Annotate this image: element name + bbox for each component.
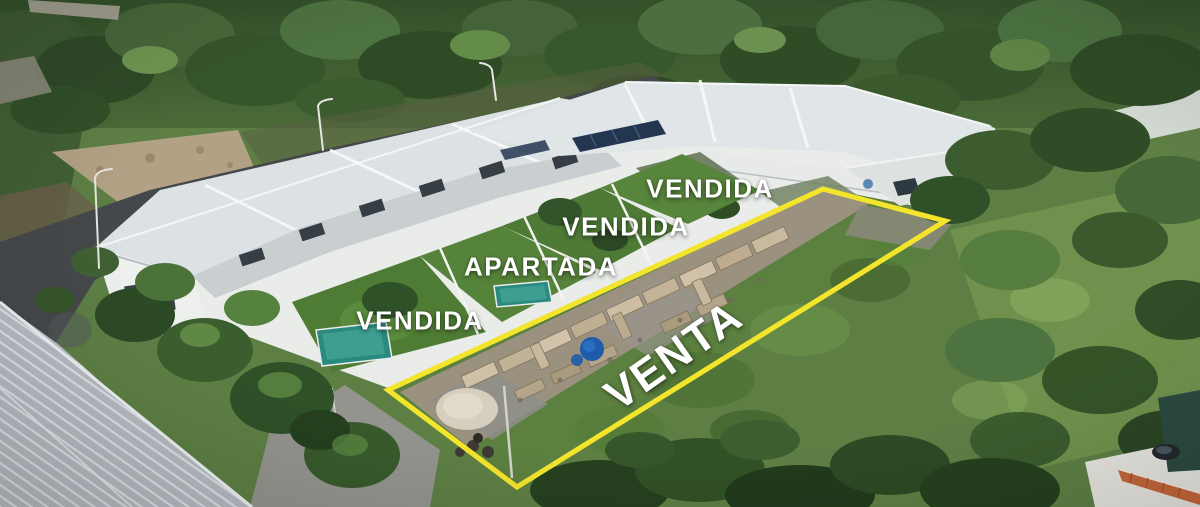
label-vendida-top: VENDIDA — [646, 174, 774, 205]
label-apartada: APARTADA — [464, 252, 618, 283]
label-vendida-middle: VENDIDA — [562, 212, 690, 243]
aerial-photo: VENDIDA VENDIDA APARTADA VENDIDA VENTA — [0, 0, 1200, 507]
label-vendida-left: VENDIDA — [356, 306, 484, 337]
